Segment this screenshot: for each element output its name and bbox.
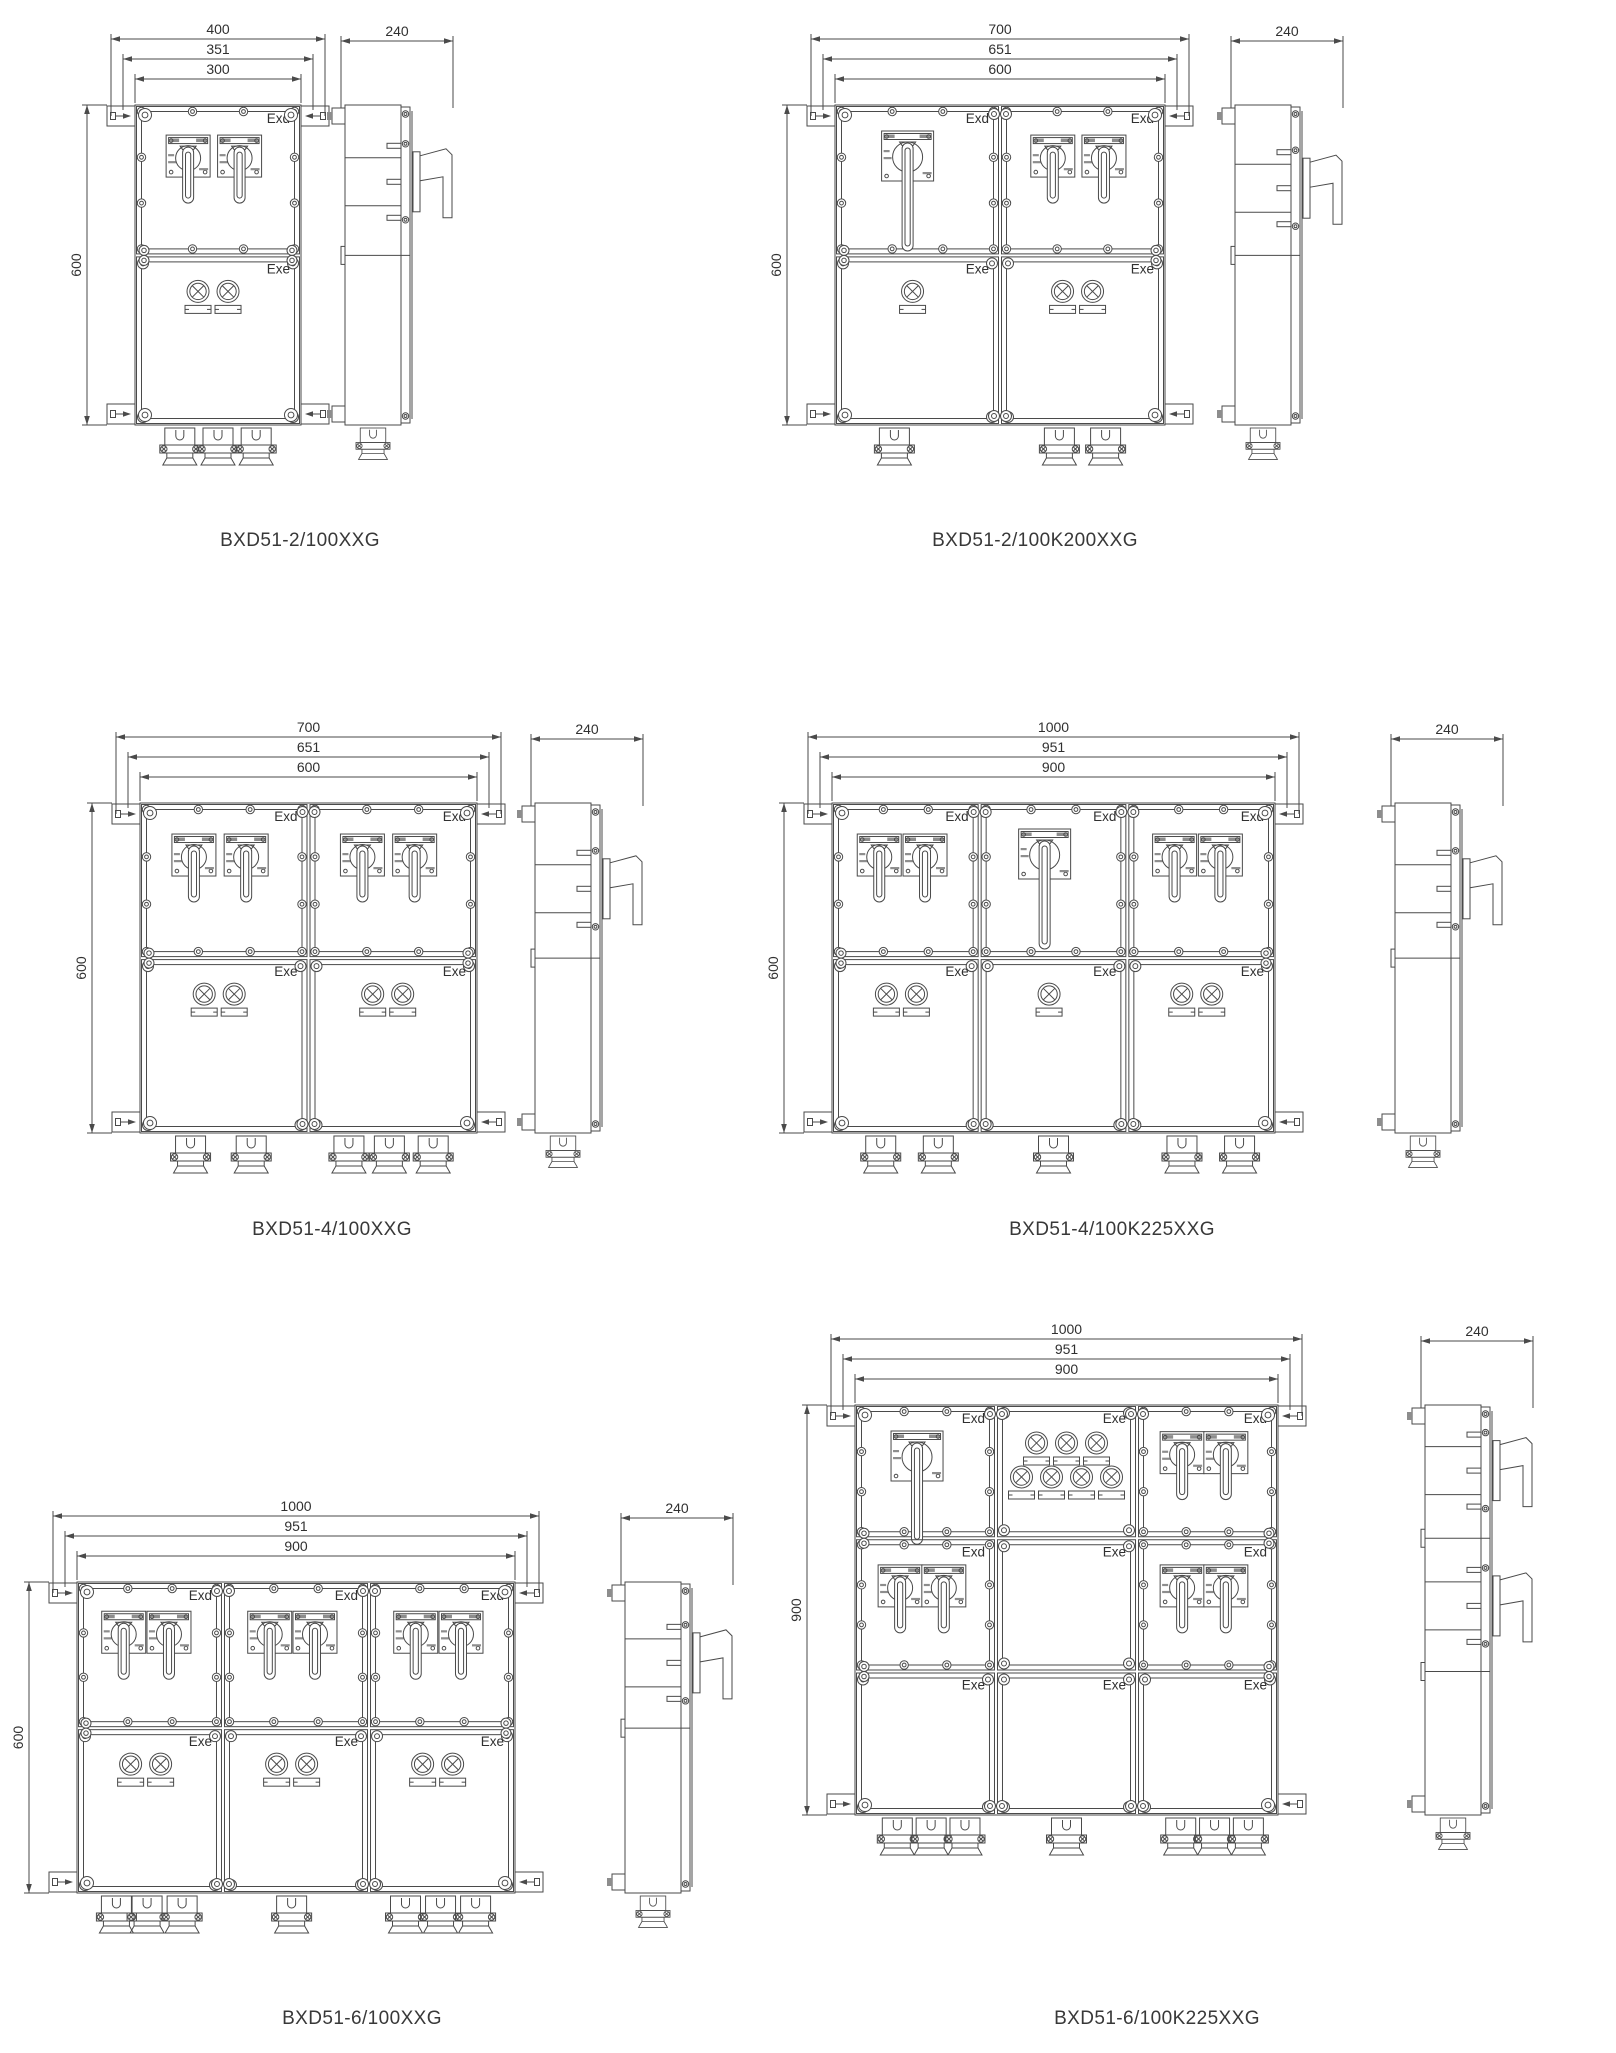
switch-icon — [891, 1431, 943, 1544]
bolt-icon — [466, 900, 474, 908]
cable-gland-icon — [1436, 1818, 1470, 1849]
compartment-exe: Exe — [981, 960, 1126, 1132]
compartment-exd: Exd — [1139, 1407, 1277, 1537]
cable-gland-icon — [272, 1896, 312, 1933]
diagram-caption: BXD51-2/100K200XXG — [815, 530, 1255, 552]
bolt-icon — [144, 948, 154, 958]
switch-icon — [1019, 829, 1071, 949]
switch-icon — [1198, 834, 1242, 902]
bolt-icon — [1225, 1528, 1233, 1536]
bolt-icon — [298, 853, 306, 861]
bolt-icon — [682, 1588, 688, 1594]
bolt-icon — [139, 409, 152, 422]
bolt-icon — [859, 1409, 872, 1422]
switch-icon — [166, 135, 210, 203]
compartment-exe: Exe — [224, 1730, 367, 1892]
bolt-icon — [1002, 245, 1010, 253]
bolt-icon — [839, 409, 852, 422]
mount-bracket-icon — [301, 404, 329, 424]
bolt-icon — [1130, 947, 1138, 955]
bolt-icon — [939, 245, 947, 253]
bolt-icon — [969, 900, 977, 908]
bolt-icon — [372, 1731, 383, 1742]
front-view: ExdExdExdExeExeExe1000951900600 — [765, 719, 1303, 1173]
bolt-icon — [1292, 413, 1298, 419]
bolt-icon — [416, 1584, 424, 1592]
diagram-caption: BXD51-6/100XXG — [142, 2008, 582, 2030]
bolt-icon — [371, 1673, 379, 1681]
diagram-4: ExdExdExdExeExeExe1000951900600240 — [765, 719, 1503, 1173]
bolt-icon — [1175, 947, 1183, 955]
bolt-icon — [1262, 1799, 1275, 1812]
bolt-icon — [1267, 1581, 1275, 1589]
operating-handle-icon — [1500, 1438, 1532, 1507]
bolt-icon — [834, 853, 842, 861]
dimension-label: 1000 — [1051, 1321, 1082, 1337]
dimension-label: 600 — [988, 61, 1012, 77]
cable-gland-icon — [1406, 1136, 1440, 1167]
compartment-label: Exe — [1103, 1411, 1126, 1426]
dimension-label: 900 — [788, 1598, 804, 1622]
bolt-icon — [1259, 807, 1272, 820]
bolt-icon — [924, 805, 932, 813]
bolt-icon — [499, 1877, 512, 1890]
bolt-icon — [1292, 111, 1298, 117]
bolt-icon — [79, 1673, 87, 1681]
bolt-icon — [592, 848, 598, 854]
bolt-icon — [371, 1717, 379, 1725]
bolt-icon — [194, 805, 202, 813]
diagram-caption: BXD51-6/100K225XXG — [937, 2008, 1377, 2030]
bolt-icon — [1175, 805, 1183, 813]
cable-gland-icon — [198, 428, 238, 465]
cable-gland-icon — [160, 428, 200, 465]
bolt-icon — [1053, 107, 1061, 115]
mount-bracket-icon — [1278, 1794, 1306, 1814]
mount-bracket-icon — [1275, 1112, 1303, 1132]
bolt-icon — [270, 1584, 278, 1592]
diagram-caption: BXD51-2/100XXG — [80, 530, 520, 552]
bolt-icon — [290, 199, 298, 207]
bolt-icon — [859, 1799, 872, 1812]
bolt-icon — [314, 1584, 322, 1592]
operating-handle-icon — [420, 149, 452, 218]
bolt-icon — [1267, 1447, 1275, 1455]
bolt-icon — [225, 1673, 233, 1681]
switch-icon — [439, 1611, 483, 1679]
bolt-icon — [1002, 153, 1010, 161]
dimension-label: 240 — [1275, 23, 1299, 39]
bolt-icon — [1225, 1661, 1233, 1669]
bolt-icon — [857, 1447, 865, 1455]
compartment-exe: Exe — [857, 1673, 995, 1814]
bolt-icon — [879, 947, 887, 955]
bolt-icon — [1261, 948, 1271, 958]
bolt-icon — [985, 1661, 993, 1669]
bolt-icon — [1117, 853, 1125, 861]
bolt-icon — [311, 853, 319, 861]
compartment-exd: Exd — [371, 1584, 514, 1727]
bolt-icon — [297, 807, 308, 818]
switch-icon — [1082, 135, 1126, 203]
switch-icon — [393, 834, 437, 902]
bolt-icon — [504, 1673, 512, 1681]
switch-icon — [878, 1565, 922, 1633]
operating-handle-icon — [610, 856, 642, 925]
bolt-icon — [1264, 853, 1272, 861]
bolt-icon — [1264, 1672, 1274, 1682]
bolt-icon — [1002, 199, 1010, 207]
dimension-label: 240 — [575, 721, 599, 737]
cable-gland-icon — [421, 1896, 461, 1933]
dimension-label: 700 — [297, 719, 321, 735]
bolt-icon — [225, 1629, 233, 1637]
bolt-icon — [1219, 947, 1227, 955]
compartment-label: Exd — [966, 111, 989, 126]
indicator-lamp-icon — [1169, 983, 1195, 1016]
compartment-label: Exe — [335, 1734, 358, 1749]
cable-gland-icon — [127, 1896, 167, 1933]
dimension: 900 — [788, 1405, 827, 1815]
side-view: 240 — [1407, 1323, 1533, 1849]
bolt-icon — [144, 807, 157, 820]
cable-gland-icon — [162, 1896, 202, 1933]
bolt-icon — [1124, 1525, 1135, 1536]
bolt-icon — [358, 1673, 366, 1681]
bolt-icon — [968, 807, 979, 818]
bolt-icon — [1001, 411, 1012, 422]
side-view: 240 — [1217, 23, 1343, 459]
compartment-exe: Exe — [137, 257, 300, 424]
compartment-exe: Exe — [997, 1540, 1135, 1670]
compartment-exd: Exd — [142, 805, 308, 957]
bolt-icon — [1104, 245, 1112, 253]
bolt-icon — [298, 900, 306, 908]
bolt-icon — [1139, 1661, 1147, 1669]
bolt-icon — [402, 141, 408, 147]
bolt-icon — [363, 947, 371, 955]
cable-gland-icon — [1162, 1136, 1202, 1173]
bolt-icon — [989, 199, 997, 207]
indicator-lamp-icon — [221, 983, 247, 1016]
compartment-label: Exd — [1244, 1544, 1267, 1559]
bolt-icon — [839, 109, 852, 122]
bolt-icon — [168, 1584, 176, 1592]
cable-gland-icon — [1086, 428, 1126, 465]
bolt-icon — [1139, 1528, 1147, 1536]
bolt-icon — [1151, 255, 1161, 265]
bolt-icon — [298, 947, 306, 955]
bolt-icon — [211, 1879, 222, 1890]
bolt-icon — [1053, 245, 1061, 253]
dimension: 240 — [1421, 1323, 1533, 1408]
compartment-exd: Exd — [1002, 107, 1164, 254]
mount-bracket-icon — [515, 1872, 543, 1892]
bolt-icon — [1139, 1581, 1147, 1589]
bolt-icon — [900, 1528, 908, 1536]
switch-icon — [1204, 1432, 1248, 1500]
bolt-icon — [1225, 1541, 1233, 1549]
bolt-icon — [1001, 109, 1012, 120]
bolt-icon — [989, 411, 1000, 422]
switch-icon — [218, 135, 262, 203]
bolt-icon — [939, 107, 947, 115]
bolt-icon — [370, 1586, 381, 1597]
dimension-label: 351 — [206, 41, 230, 57]
compartment-label: Exe — [189, 1734, 212, 1749]
diagram-caption: BXD51-4/100K225XXG — [892, 1219, 1332, 1241]
bolt-icon — [1124, 1658, 1135, 1669]
bolt-icon — [414, 947, 422, 955]
bolt-icon — [287, 255, 297, 265]
compartment-exd: Exd — [224, 1584, 367, 1727]
dimension: 900 — [832, 759, 1275, 801]
bolt-icon — [370, 1879, 381, 1890]
dimension: 240 — [1391, 721, 1503, 806]
bolt-icon — [859, 1538, 869, 1548]
bolt-icon — [682, 1622, 688, 1628]
bolt-icon — [1264, 900, 1272, 908]
bolt-icon — [859, 1672, 869, 1682]
bolt-icon — [142, 900, 150, 908]
bolt-icon — [1139, 1621, 1147, 1629]
bolt-icon — [1139, 1487, 1147, 1495]
cable-gland-icon — [918, 1136, 958, 1173]
dimension-label: 600 — [68, 253, 84, 277]
front-view: ExdExeExdExdExeExdExeExeExe1000951900900 — [788, 1321, 1306, 1855]
bolt-icon — [139, 255, 149, 265]
bolt-icon — [194, 947, 202, 955]
switch-icon — [102, 1611, 146, 1679]
bolt-icon — [943, 1528, 951, 1536]
bolt-icon — [682, 1698, 688, 1704]
diagram-1: ExdExe400351300600240 — [68, 21, 453, 465]
bolt-icon — [592, 924, 598, 930]
indicator-lamp-icon — [191, 983, 217, 1016]
bolt-icon — [371, 1629, 379, 1637]
bolt-icon — [682, 1881, 688, 1887]
dimension: 600 — [10, 1582, 49, 1893]
indicator-lamp-icon — [1024, 1432, 1050, 1465]
bolt-icon — [998, 1674, 1009, 1685]
switch-icon — [172, 834, 216, 902]
dimension-label: 900 — [1042, 759, 1066, 775]
bolt-icon — [358, 1717, 366, 1725]
bolt-icon — [985, 1528, 993, 1536]
bolt-icon — [168, 1717, 176, 1725]
cable-gland-icon — [1034, 1136, 1074, 1173]
bolt-icon — [225, 1717, 233, 1725]
dimension-label: 240 — [1465, 1323, 1489, 1339]
mount-bracket-icon — [477, 1112, 505, 1132]
bolt-icon — [81, 1877, 94, 1890]
dimension-label: 240 — [665, 1500, 689, 1516]
bolt-icon — [1182, 1541, 1190, 1549]
mount-bracket-icon — [112, 1112, 140, 1132]
indicator-lamp-icon — [1009, 1466, 1035, 1499]
bolt-icon — [246, 947, 254, 955]
bolt-icon — [1264, 1662, 1274, 1672]
bolt-icon — [1149, 109, 1162, 122]
cable-gland-icon — [1246, 428, 1280, 459]
bolt-icon — [225, 1731, 236, 1742]
compartment-exd: Exd — [834, 805, 979, 957]
switch-icon — [857, 834, 901, 902]
bolt-icon — [1151, 245, 1161, 255]
bolt-icon — [463, 948, 473, 958]
bolt-icon — [982, 853, 990, 861]
bolt-icon — [1182, 1528, 1190, 1536]
bolt-icon — [1154, 199, 1162, 207]
bolt-icon — [239, 107, 247, 115]
bolt-icon — [358, 1586, 369, 1597]
cable-gland-icon — [329, 1136, 369, 1173]
bolt-icon — [943, 1541, 951, 1549]
indicator-lamp-icon — [1084, 1432, 1110, 1465]
bolt-icon — [212, 1629, 220, 1637]
bolt-icon — [466, 853, 474, 861]
bolt-icon — [311, 961, 322, 972]
compartment-exe: Exe — [371, 1730, 514, 1892]
bolt-icon — [188, 107, 196, 115]
dimension-label: 300 — [206, 61, 230, 77]
operating-handle-icon — [1470, 856, 1502, 925]
bolt-icon — [239, 245, 247, 253]
bolt-icon — [358, 1629, 366, 1637]
bolt-icon — [144, 1117, 157, 1130]
bolt-icon — [1482, 1641, 1488, 1647]
bolt-icon — [287, 245, 297, 255]
bolt-icon — [998, 1658, 1009, 1669]
bolt-icon — [212, 1717, 220, 1725]
bolt-icon — [592, 809, 598, 815]
switch-icon — [147, 1611, 191, 1679]
cable-gland-icon — [356, 428, 390, 459]
bolt-icon — [1027, 947, 1035, 955]
compartment-label: Exe — [962, 1678, 985, 1693]
bolt-icon — [124, 1584, 132, 1592]
indicator-lamp-icon — [1036, 983, 1062, 1016]
dimension-label: 900 — [284, 1538, 308, 1554]
bolt-icon — [900, 1661, 908, 1669]
bolt-icon — [996, 1801, 1007, 1812]
cable-gland-icon — [369, 1136, 409, 1173]
bolt-icon — [1139, 1447, 1147, 1455]
compartment-label: Exe — [1244, 1678, 1267, 1693]
bolt-icon — [285, 409, 298, 422]
bolt-icon — [1482, 1411, 1488, 1417]
bolt-icon — [223, 1879, 234, 1890]
front-view: ExdExdExeExe700651600600 — [768, 21, 1193, 465]
switch-icon — [340, 834, 384, 902]
bolt-icon — [1116, 807, 1127, 818]
cable-gland-icon — [231, 1136, 271, 1173]
bolt-icon — [1149, 409, 1162, 422]
indicator-lamp-icon — [264, 1753, 290, 1786]
bolt-icon — [314, 1717, 322, 1725]
bolt-icon — [124, 1717, 132, 1725]
bolt-icon — [1117, 900, 1125, 908]
compartment-exd: Exd — [981, 805, 1126, 957]
compartment-exe: Exe — [1139, 1673, 1277, 1814]
bolt-icon — [834, 900, 842, 908]
bolt-icon — [943, 1407, 951, 1415]
bolt-icon — [1452, 924, 1458, 930]
compartment-label: Exe — [481, 1734, 504, 1749]
bolt-icon — [985, 1621, 993, 1629]
dimension: 240 — [621, 1500, 733, 1585]
compartment-exe: Exe — [997, 1407, 1135, 1537]
bolt-icon — [461, 1117, 474, 1130]
switch-icon — [1031, 135, 1075, 203]
bolt-icon — [980, 807, 991, 818]
side-view: 240 — [517, 721, 643, 1167]
bolt-icon — [1128, 807, 1139, 818]
dimension: 900 — [855, 1361, 1278, 1403]
dimension: 240 — [1231, 23, 1343, 108]
bolt-icon — [81, 1586, 94, 1599]
bolt-icon — [1130, 853, 1138, 861]
bolt-icon — [836, 1117, 849, 1130]
diagram-5: ExdExdExdExeExeExe1000951900600240 — [10, 1498, 733, 1933]
bolt-icon — [998, 1541, 1009, 1552]
indicator-lamp-icon — [1050, 280, 1076, 313]
bolt-icon — [402, 111, 408, 117]
operating-handle-icon — [1310, 155, 1342, 224]
dimension: 240 — [341, 23, 453, 108]
bolt-icon — [837, 153, 845, 161]
switch-icon — [1204, 1565, 1248, 1633]
indicator-lamp-icon — [900, 280, 926, 313]
bolt-icon — [1126, 1801, 1137, 1812]
bolt-icon — [270, 1717, 278, 1725]
switch-icon — [882, 131, 934, 251]
bolt-icon — [924, 947, 932, 955]
dimension-label: 1000 — [1038, 719, 1069, 735]
dimension-label: 600 — [768, 253, 784, 277]
bolt-icon — [984, 1409, 995, 1420]
bolt-icon — [137, 199, 145, 207]
dimension: 240 — [531, 721, 643, 806]
bolt-icon — [501, 1718, 511, 1728]
technical-drawing-page: ExdExe400351300600240ExdExdExeExe7006516… — [0, 0, 1616, 2053]
dimension-label: 900 — [1055, 1361, 1079, 1377]
indicator-lamp-icon — [294, 1753, 320, 1786]
side-view: 240 — [327, 23, 453, 459]
bolt-icon — [985, 1541, 993, 1549]
compartment-label: Exd — [962, 1544, 985, 1559]
bolt-icon — [839, 245, 849, 255]
bolt-icon — [857, 1487, 865, 1495]
bolt-icon — [1452, 848, 1458, 854]
compartment-exe: Exe — [837, 257, 999, 424]
compartment-exd: Exd — [79, 1584, 222, 1727]
switch-icon — [293, 1611, 337, 1679]
compartment-label: Exe — [1131, 261, 1154, 276]
side-view: 240 — [607, 1500, 733, 1927]
compartment-label: Exe — [1103, 1678, 1126, 1693]
compartment-exd: Exd — [837, 107, 999, 254]
bolt-icon — [81, 1728, 91, 1738]
switch-icon — [1153, 834, 1197, 902]
bolt-icon — [1140, 1674, 1151, 1685]
bolt-icon — [1267, 1621, 1275, 1629]
dimension: 300 — [135, 61, 301, 103]
bolt-icon — [211, 1586, 222, 1597]
bolt-icon — [1116, 1119, 1127, 1130]
bolt-icon — [297, 1119, 308, 1130]
bolt-icon — [1104, 107, 1112, 115]
